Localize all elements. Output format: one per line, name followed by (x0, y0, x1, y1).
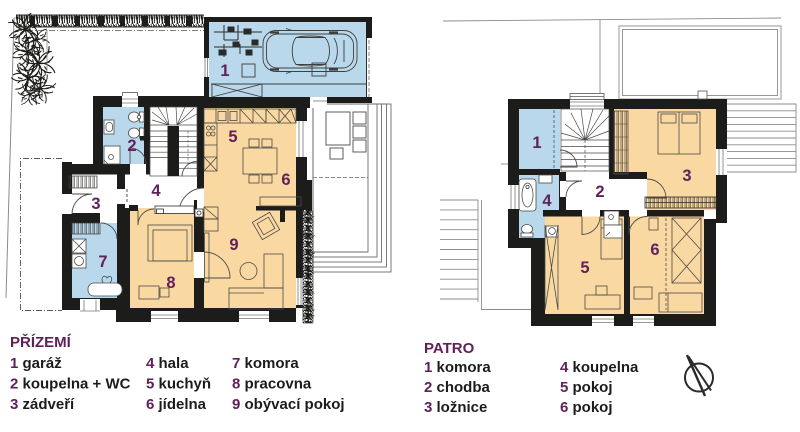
svg-text:2 chodba: 2 chodba (424, 379, 491, 396)
svg-text:1 komora: 1 komora (424, 359, 491, 376)
svg-text:6 jídelna: 6 jídelna (146, 396, 207, 413)
svg-text:3: 3 (682, 167, 691, 185)
svg-text:1: 1 (220, 62, 229, 80)
svg-text:3: 3 (91, 195, 100, 213)
svg-text:3 zádveří: 3 zádveří (10, 396, 75, 413)
svg-text:6 pokoj: 6 pokoj (560, 399, 613, 416)
svg-text:8 pracovna: 8 pracovna (232, 376, 312, 393)
svg-text:4: 4 (151, 182, 161, 200)
svg-text:1: 1 (532, 134, 541, 152)
svg-text:4: 4 (542, 192, 552, 210)
svg-text:9: 9 (229, 236, 238, 254)
svg-text:4 koupelna: 4 koupelna (560, 359, 639, 376)
svg-text:7: 7 (98, 253, 107, 271)
svg-text:1 garáž: 1 garáž (10, 355, 62, 372)
svg-text:3 ložnice: 3 ložnice (424, 399, 487, 416)
svg-text:PATRO: PATRO (424, 340, 475, 357)
svg-text:6: 6 (650, 241, 659, 259)
svg-text:8: 8 (166, 274, 175, 292)
svg-text:2 koupelna + WC: 2 koupelna + WC (10, 376, 131, 393)
svg-text:5 kuchyň: 5 kuchyň (146, 376, 211, 393)
svg-text:4 hala: 4 hala (146, 355, 189, 372)
svg-text:PŘÍZEMÍ: PŘÍZEMÍ (10, 333, 72, 351)
svg-text:5: 5 (580, 259, 589, 277)
svg-text:5: 5 (228, 128, 237, 146)
svg-text:2: 2 (595, 183, 604, 201)
svg-text:2: 2 (127, 137, 136, 155)
svg-text:6: 6 (281, 171, 290, 189)
svg-text:9 obývací pokoj: 9 obývací pokoj (232, 396, 345, 413)
svg-text:5 pokoj: 5 pokoj (560, 379, 613, 396)
svg-text:7 komora: 7 komora (232, 355, 299, 372)
